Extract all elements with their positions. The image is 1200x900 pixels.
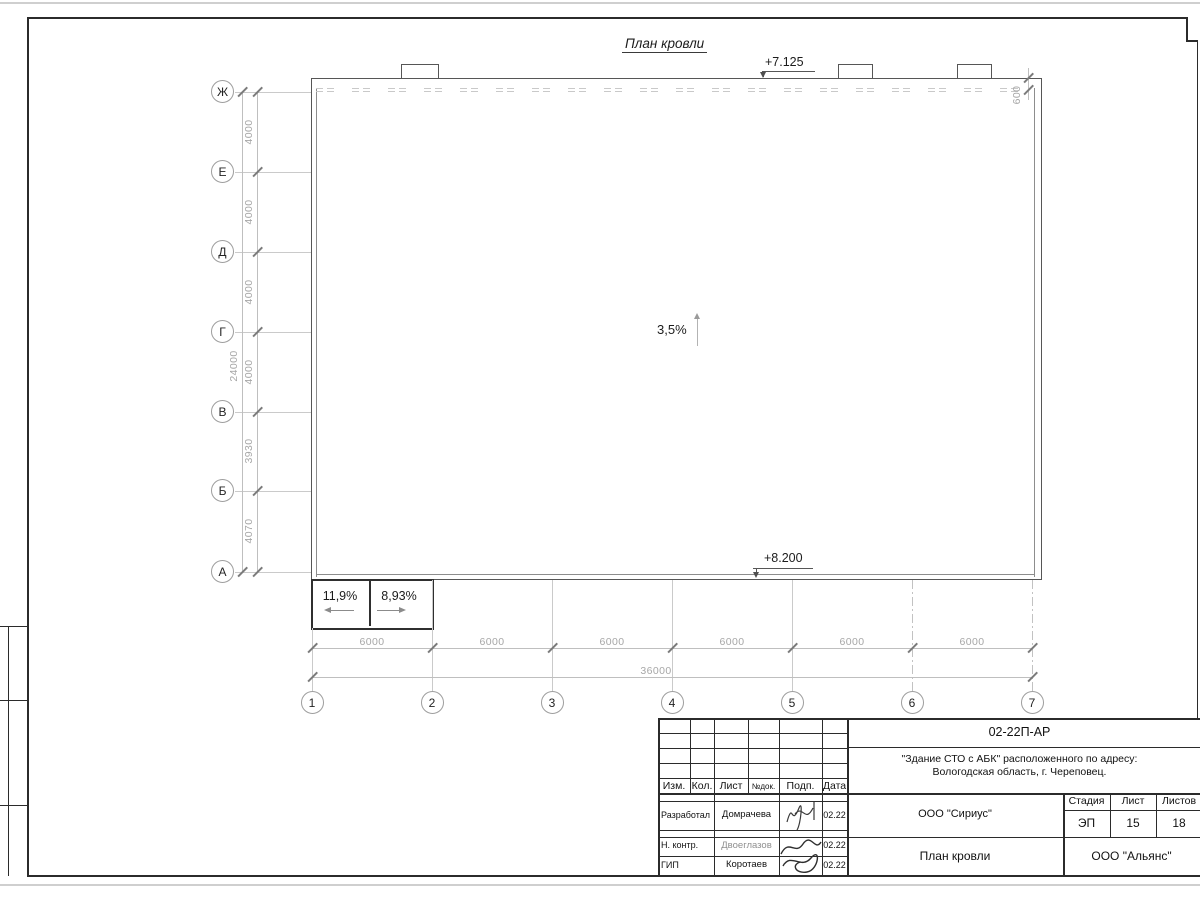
roof-parapet-dashed-line [316, 91, 1034, 92]
frame-top [27, 17, 1186, 19]
roof-vent-tab [957, 64, 992, 79]
sheet-edge-bottom [0, 884, 1200, 886]
col-axis-bubble: 2 [421, 691, 444, 714]
row-dim-label: 3930 [243, 429, 255, 473]
tb-name: Двоеглазов [714, 840, 779, 851]
row-dim-label: 4070 [243, 509, 255, 553]
offset-dim-line [1028, 68, 1029, 100]
col-extension-line [552, 580, 553, 692]
tb-col-kol: Кол. [690, 780, 714, 792]
col-total-dim-line [312, 677, 1032, 678]
col-dim-label: 6000 [822, 636, 882, 648]
tb-project-line2: Вологодская область, г. Череповец. [847, 766, 1192, 778]
main-slope-arrow [697, 319, 698, 346]
tb-listov-label: Листов [1156, 795, 1200, 807]
annex-slope-right-arrow [377, 610, 400, 611]
tb-role: Н. контр. [661, 840, 713, 850]
tb-col-data: Дата [822, 780, 847, 792]
sheet-edge-top [0, 2, 1200, 4]
tb-line [658, 778, 847, 779]
row-total-dim-line [242, 92, 243, 572]
col-dim-label: 6000 [462, 636, 522, 648]
tb-sheet-title: План кровли [847, 849, 1063, 863]
col-total-dim-label: 36000 [628, 665, 684, 677]
col-dim-label: 6000 [702, 636, 762, 648]
tb-date: 02.22 [822, 840, 847, 850]
main-slope-arrow-icon [694, 313, 700, 319]
drawing-title: План кровли [622, 36, 707, 53]
tb-date: 02.22 [822, 860, 847, 870]
side-stamp-divider [8, 626, 9, 876]
row-extension-line [235, 572, 311, 573]
col-axis-bubble: 6 [901, 691, 924, 714]
annex-slope-left-label: 11,9% [314, 589, 366, 603]
drawing-sheet: План кровли 600 +7.125 +8.200 3,5% 11,9%… [0, 0, 1200, 900]
row-extension-line [235, 172, 311, 173]
row-axis-bubble: Б [211, 479, 234, 502]
frame-left [27, 17, 29, 876]
tb-role: Разработал [661, 810, 713, 820]
col-extension-line-dashdot [912, 580, 913, 692]
tb-list-label: Лист [1110, 795, 1156, 807]
elevation-top-leader [762, 71, 815, 72]
col-axis-bubble: 5 [781, 691, 804, 714]
tb-list-value: 15 [1110, 816, 1156, 830]
tb-stage-value: ЭП [1063, 816, 1110, 830]
tb-line [658, 718, 1200, 720]
row-axis-bubble: Ж [211, 80, 234, 103]
row-axis-bubble: В [211, 400, 234, 423]
signature-1 [781, 794, 821, 836]
col-extension-line [312, 628, 313, 692]
roof-inner-bottom [316, 574, 1035, 575]
side-stamp-line [0, 805, 27, 806]
col-axis-bubble: 7 [1021, 691, 1044, 714]
tb-project-line1: "Здание СТО с АБК" расположенного по адр… [847, 753, 1192, 765]
col-extension-line [432, 580, 433, 692]
annex-slope-right-arrow-icon [399, 607, 406, 613]
tb-line [658, 763, 847, 764]
col-dim-label: 6000 [582, 636, 642, 648]
roof-parapet-dashed-line [316, 88, 1034, 89]
tb-designer-org: ООО "Сириус" [847, 808, 1063, 820]
row-dim-label: 4000 [243, 190, 255, 234]
tb-col-podp: Подп. [779, 780, 822, 792]
tb-role: ГИП [661, 860, 713, 870]
signature-2 [777, 836, 823, 876]
col-dim-label: 6000 [342, 636, 402, 648]
tb-name: Коротаев [714, 859, 779, 870]
row-extension-line [235, 92, 311, 93]
tb-line [658, 748, 847, 749]
row-axis-bubble: Е [211, 160, 234, 183]
main-slope-label: 3,5% [657, 322, 687, 337]
col-extension-line [792, 580, 793, 692]
row-dim-label: 4000 [243, 110, 255, 154]
annex-slope-left-arrow-icon [324, 607, 331, 613]
side-stamp-line [0, 626, 27, 627]
tb-client-org: ООО "Альянс" [1063, 849, 1200, 863]
elevation-top-arrow-icon [760, 72, 766, 78]
row-extension-line [235, 412, 311, 413]
frame-bottom [27, 875, 1200, 877]
annex-slope-right-label: 8,93% [372, 589, 426, 603]
row-total-dim-label: 24000 [228, 342, 240, 390]
roof-inner-left [316, 88, 317, 577]
frame-right [1197, 40, 1199, 718]
side-stamp-line [0, 700, 27, 701]
row-axis-bubble: А [211, 560, 234, 583]
row-extension-line [235, 332, 311, 333]
tb-line [714, 718, 715, 876]
row-axis-bubble: Д [211, 240, 234, 263]
col-dim-label: 6000 [942, 636, 1002, 648]
row-dim-label: 4000 [243, 350, 255, 394]
tb-line [847, 747, 1200, 748]
elevation-top-label: +7.125 [765, 55, 804, 69]
tb-line [658, 733, 847, 734]
row-extension-line [235, 252, 311, 253]
annex-divider [369, 579, 371, 626]
row-extension-line [235, 491, 311, 492]
row-dim-label: 4000 [243, 270, 255, 314]
roof-inner-right [1034, 88, 1035, 577]
annex-outline [311, 579, 434, 630]
tb-listov-value: 18 [1156, 816, 1200, 830]
row-axis-bubble: Г [211, 320, 234, 343]
elevation-bottom-leader [753, 568, 813, 569]
roof-vent-tab [838, 64, 873, 79]
tb-col-list: Лист [714, 780, 748, 792]
offset-dim-label: 600 [1011, 76, 1023, 114]
tb-line [658, 718, 660, 876]
tb-stage-label: Стадия [1063, 795, 1110, 807]
tb-name: Домрачева [714, 809, 779, 820]
tb-doc-number: 02-22П-АР [847, 725, 1192, 739]
tb-line [847, 837, 1200, 838]
frame-notch-vertical [1186, 17, 1188, 41]
tb-line [1063, 810, 1200, 811]
tb-col-izm: Изм. [658, 780, 690, 792]
elevation-bottom-arrow-icon [753, 572, 759, 578]
col-axis-bubble: 3 [541, 691, 564, 714]
col-axis-bubble: 4 [661, 691, 684, 714]
tb-date: 02.22 [822, 810, 847, 820]
roof-vent-tab [401, 64, 439, 79]
elevation-bottom-label: +8.200 [764, 551, 803, 565]
annex-slope-left-arrow [330, 610, 354, 611]
col-axis-bubble: 1 [301, 691, 324, 714]
tb-col-ndok: №док. [748, 782, 779, 791]
